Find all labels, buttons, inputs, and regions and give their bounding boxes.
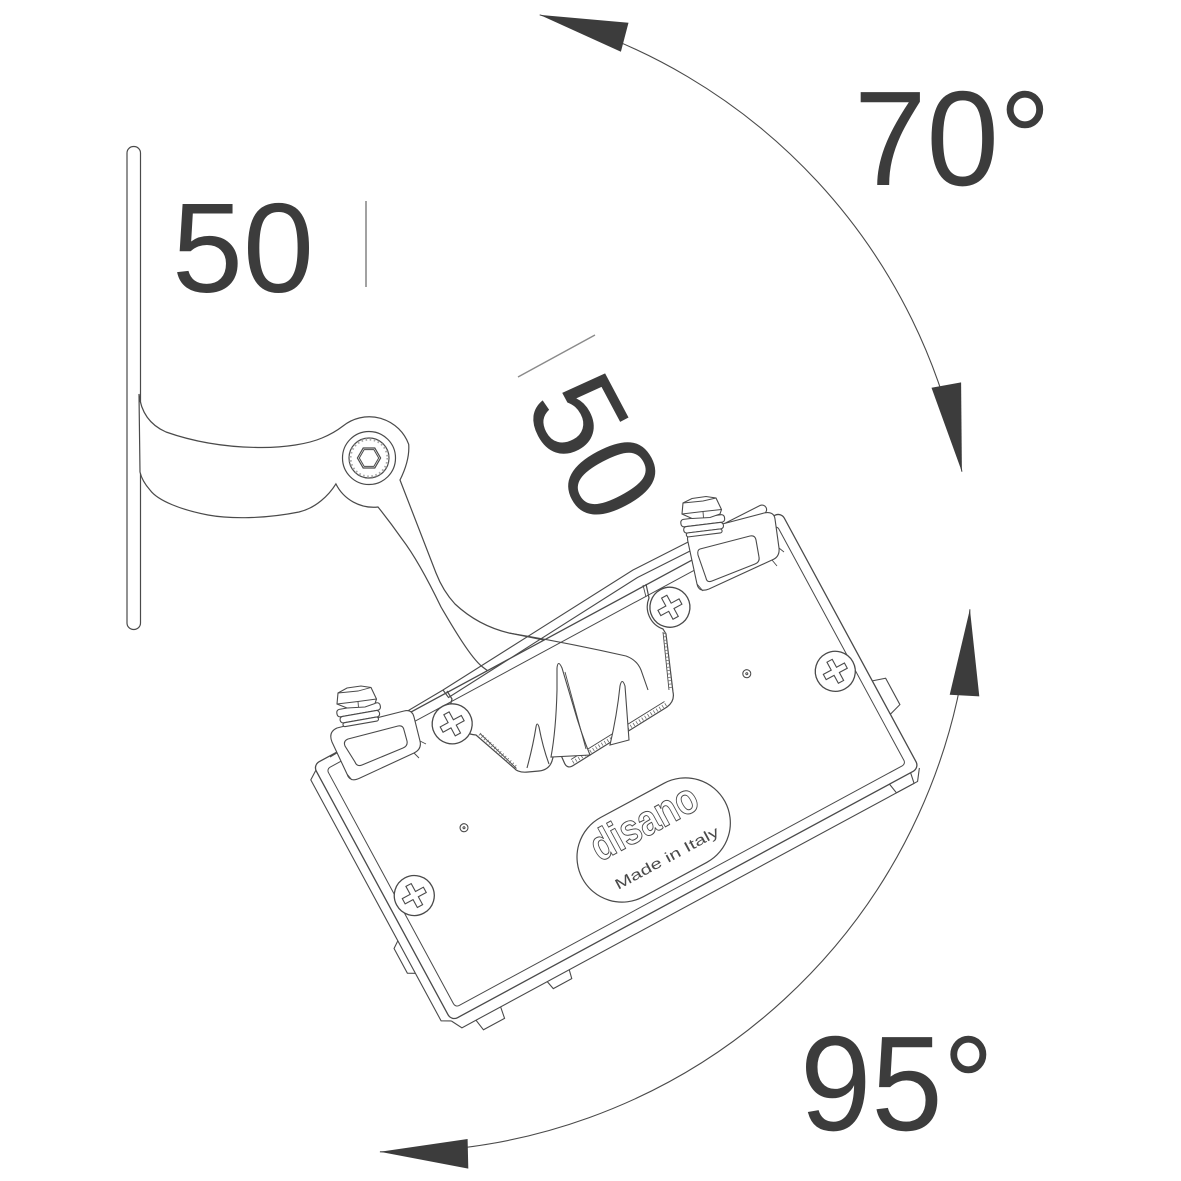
svg-text:50: 50 xyxy=(172,177,314,319)
svg-text:70°: 70° xyxy=(854,63,1051,214)
svg-text:95°: 95° xyxy=(800,1008,994,1159)
